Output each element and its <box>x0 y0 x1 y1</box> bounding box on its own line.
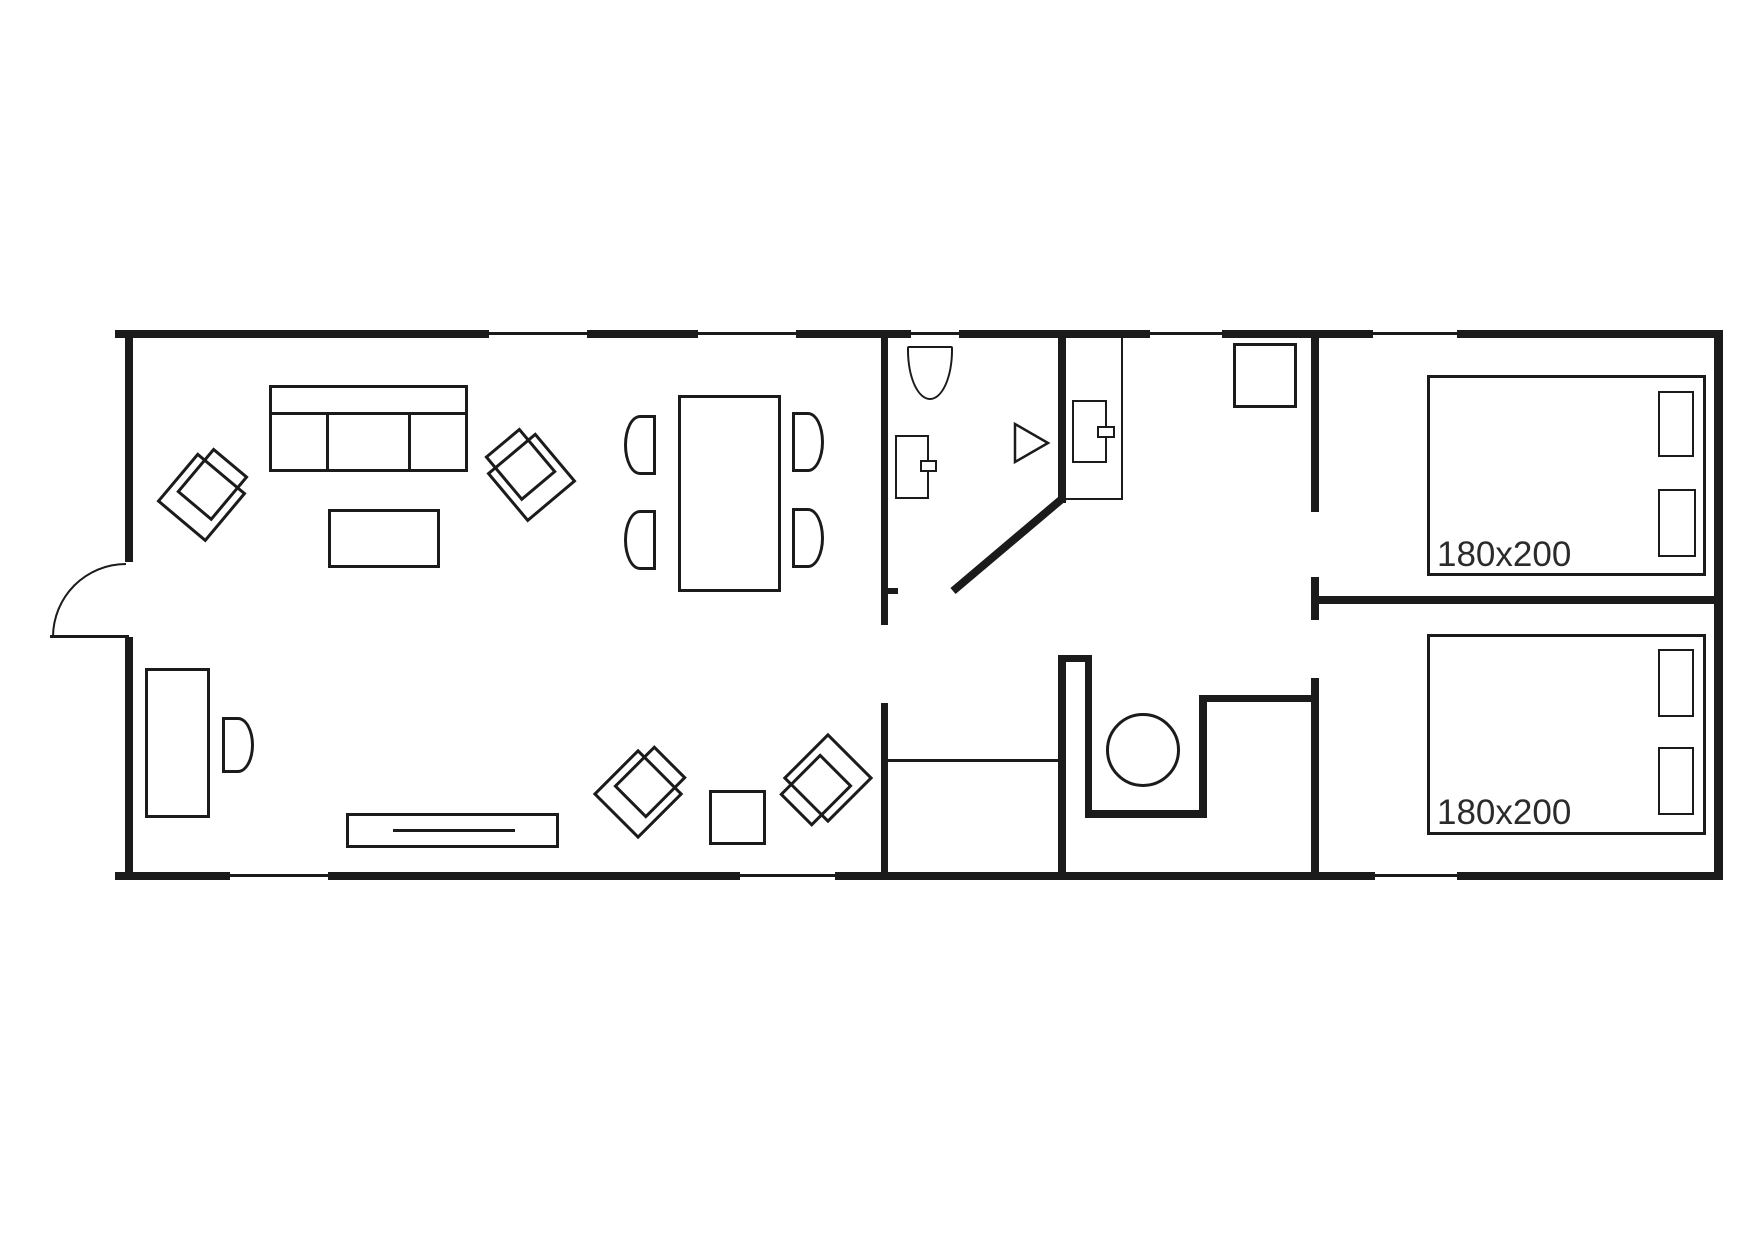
wall <box>125 637 133 880</box>
pillow <box>1658 747 1694 815</box>
window <box>489 332 587 335</box>
wall <box>1311 331 1319 512</box>
wall <box>959 330 1150 338</box>
bathroom-sink <box>907 346 953 400</box>
pillow <box>1658 489 1696 557</box>
sofa-seat-divider <box>408 412 411 469</box>
armchair <box>156 442 255 543</box>
wall <box>881 703 888 877</box>
wall <box>1311 678 1319 875</box>
diagonal-wall <box>950 494 1066 594</box>
wall <box>587 330 698 338</box>
coffee-table <box>328 509 440 568</box>
window <box>1375 874 1457 877</box>
floor-plan: 180x200 180x200 <box>0 0 1754 1241</box>
bed-size-label: 180x200 <box>1437 537 1571 572</box>
dining-chair <box>624 510 656 570</box>
wall <box>328 872 740 880</box>
toilet-flush-button <box>1097 426 1115 438</box>
tv-sideboard <box>346 813 559 848</box>
lounge-chair <box>773 733 873 833</box>
dining-chair <box>792 412 824 472</box>
wall <box>796 330 911 338</box>
wall <box>1085 655 1092 817</box>
shower-head-icon <box>1013 421 1051 467</box>
wall <box>835 872 1375 880</box>
wall <box>1085 810 1207 818</box>
bedroom-divider-wall <box>1311 596 1722 604</box>
closet-rod-line <box>888 759 1059 762</box>
lounge-chair <box>593 739 693 839</box>
door-jamb-tick <box>888 588 898 594</box>
wall <box>881 331 888 625</box>
cabinet <box>1233 343 1297 408</box>
washing-machine <box>1106 713 1180 787</box>
wall <box>115 330 489 338</box>
tv-screen-line <box>393 829 515 832</box>
armchair <box>477 422 576 523</box>
wall <box>1457 872 1722 880</box>
wall <box>1199 695 1313 702</box>
bed-size-label: 180x200 <box>1437 795 1571 830</box>
window <box>698 332 796 335</box>
window <box>1150 332 1222 335</box>
window <box>740 874 835 877</box>
dining-chair <box>792 508 824 568</box>
wall <box>1457 330 1722 338</box>
sofa-seat-divider <box>326 412 329 469</box>
window <box>1373 332 1457 335</box>
window <box>230 874 328 877</box>
wall <box>1714 330 1723 880</box>
wall <box>1222 330 1373 338</box>
pillow <box>1658 391 1694 457</box>
wall <box>1058 655 1066 876</box>
pillow <box>1658 649 1694 717</box>
toilet-flush-button <box>920 460 937 472</box>
window <box>911 332 959 335</box>
dining-table <box>678 395 781 592</box>
dining-chair <box>624 415 656 475</box>
sofa-back-line <box>272 412 465 415</box>
desk <box>145 668 210 818</box>
wall <box>125 330 133 562</box>
desk-chair <box>222 717 254 773</box>
entrance-door-swing-arc <box>52 563 126 637</box>
wall <box>1058 331 1066 503</box>
sofa <box>269 385 468 472</box>
side-table <box>709 790 766 845</box>
wall <box>1199 695 1207 818</box>
entrance-door-leaf <box>50 635 129 638</box>
